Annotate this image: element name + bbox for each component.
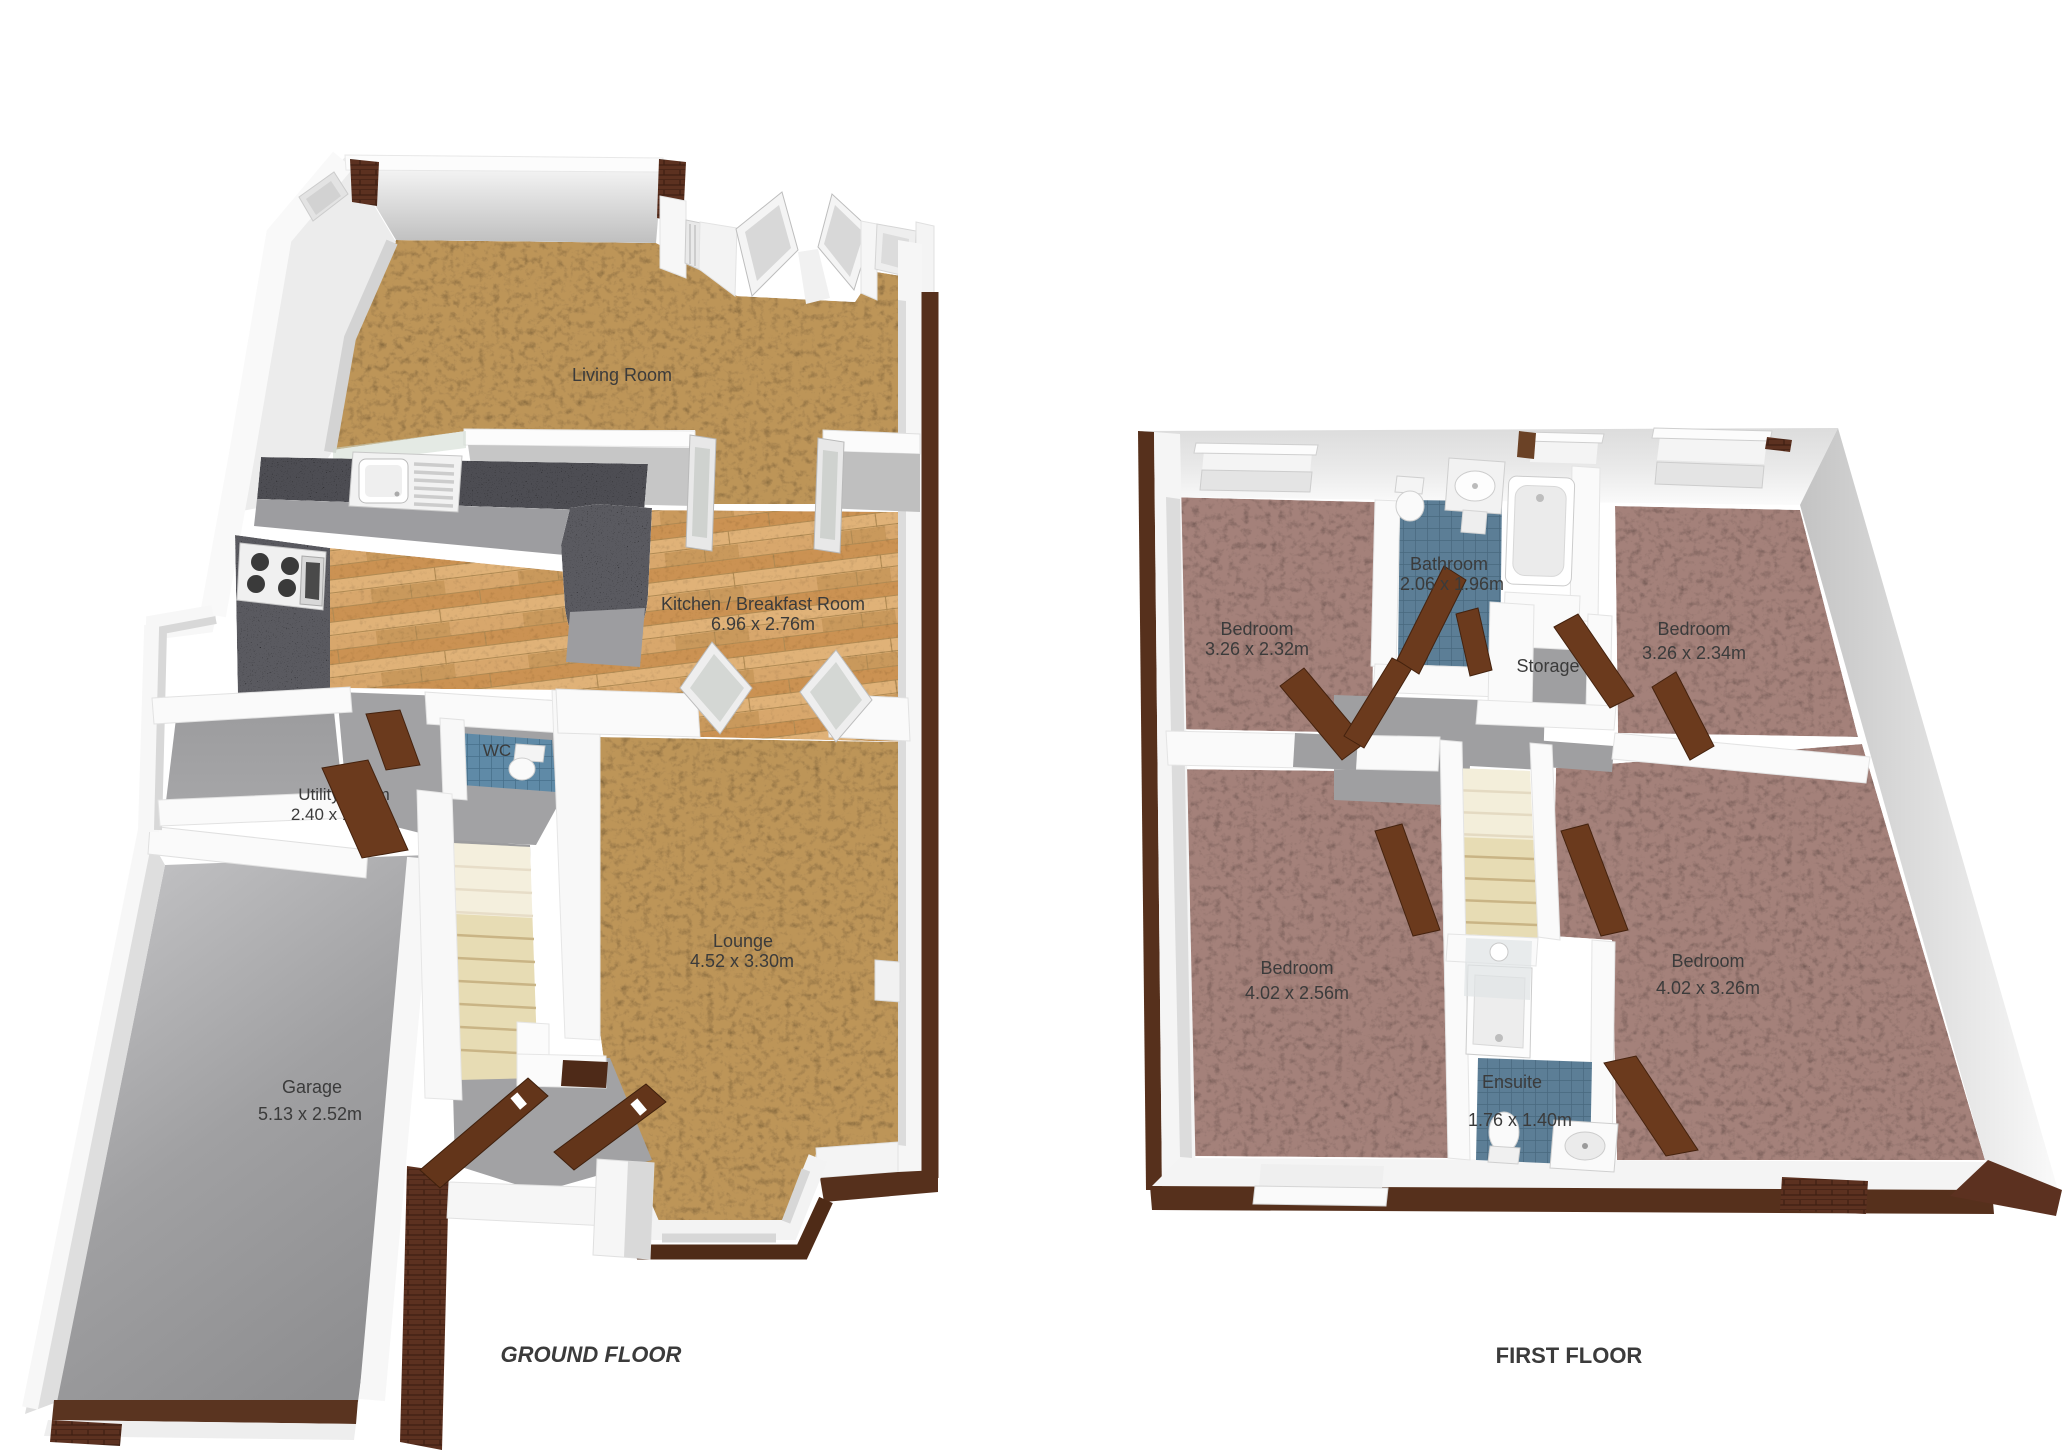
svg-text:Storage: Storage <box>1516 656 1579 676</box>
svg-text:4.02 x 2.56m: 4.02 x 2.56m <box>1245 983 1349 1003</box>
svg-text:Kitchen / Breakfast Room: Kitchen / Breakfast Room <box>661 594 865 614</box>
svg-text:WC: WC <box>483 741 511 760</box>
svg-text:3.26 x 2.34m: 3.26 x 2.34m <box>1642 643 1746 663</box>
svg-text:GROUND FLOOR: GROUND FLOOR <box>501 1342 682 1367</box>
svg-text:5.13 x 2.52m: 5.13 x 2.52m <box>258 1104 362 1124</box>
svg-text:2.06 x 1.96m: 2.06 x 1.96m <box>1400 574 1504 594</box>
svg-text:Bedroom: Bedroom <box>1220 619 1293 639</box>
svg-text:Bedroom: Bedroom <box>1671 951 1744 971</box>
svg-text:Ensuite: Ensuite <box>1482 1072 1542 1092</box>
svg-text:3.26 x 2.32m: 3.26 x 2.32m <box>1205 639 1309 659</box>
svg-text:1.76 x 1.40m: 1.76 x 1.40m <box>1468 1110 1572 1130</box>
svg-text:Living Room: Living Room <box>572 365 672 385</box>
svg-text:4.52 x 3.30m: 4.52 x 3.30m <box>690 951 794 971</box>
svg-text:Garage: Garage <box>282 1077 342 1097</box>
svg-text:6.96 x 2.76m: 6.96 x 2.76m <box>711 614 815 634</box>
svg-text:Bedroom: Bedroom <box>1260 958 1333 978</box>
svg-text:Bathroom: Bathroom <box>1410 554 1488 574</box>
svg-text:FIRST FLOOR: FIRST FLOOR <box>1496 1343 1643 1368</box>
svg-text:4.02 x 3.26m: 4.02 x 3.26m <box>1656 978 1760 998</box>
svg-text:Bedroom: Bedroom <box>1657 619 1730 639</box>
svg-text:Lounge: Lounge <box>713 931 773 951</box>
